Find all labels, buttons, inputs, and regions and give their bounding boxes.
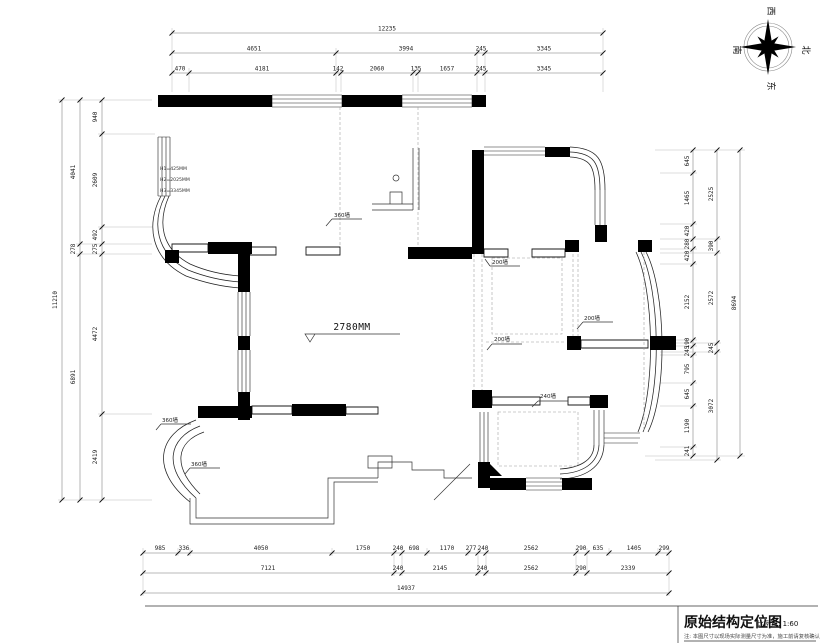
dim-label: 1405 xyxy=(627,545,642,552)
dim-label: 2562 xyxy=(524,545,539,552)
drawing-note: 注: 本图尺寸以现场实际测量尺寸为准，施工前请复核确认。 xyxy=(684,632,820,640)
dim-label: 1657 xyxy=(440,66,455,73)
dim-label: 241 xyxy=(684,445,691,456)
compass-label-west: 西 xyxy=(766,6,776,15)
wall-thickness-label: 200墙 xyxy=(494,335,510,343)
dim-label: 1750 xyxy=(356,545,371,552)
compass-rose: 西 北 东 南 xyxy=(732,6,811,90)
dim-label: 985 xyxy=(155,545,166,552)
dim-label: 240 xyxy=(393,545,404,552)
wall-thickness-label: 360墙 xyxy=(334,211,350,219)
wall-thickness-label: 200墙 xyxy=(492,258,508,266)
dim-label: 8694 xyxy=(731,295,738,310)
structural-wall-fills xyxy=(158,95,676,490)
dim-label: 245 xyxy=(476,46,487,53)
dimension-lines xyxy=(58,28,745,596)
dim-label: 240 xyxy=(393,565,404,572)
dim-label: 11210 xyxy=(52,291,59,309)
flue-circle xyxy=(393,175,399,181)
drawing-scale: 比例尺: 1:60 xyxy=(757,619,798,628)
dim-label: 299 xyxy=(659,545,670,552)
dim-label: 290 xyxy=(576,545,587,552)
dim-label: 940 xyxy=(92,111,99,122)
dim-label: 2609 xyxy=(92,172,99,187)
dim-label: 245 xyxy=(708,342,715,353)
dim-label: 2572 xyxy=(708,290,715,305)
dim-label: 3994 xyxy=(399,46,414,53)
dimensions-bottom: 985 336 4050 1750 240 698 1170 277 240 2… xyxy=(155,545,670,592)
compass-label-east: 东 xyxy=(766,81,777,90)
dim-label: 635 xyxy=(593,545,604,552)
dimensions-right: 8694 2525 390 2572 245 3072 645 1465 420… xyxy=(684,155,738,456)
dim-label: 2152 xyxy=(684,294,691,309)
dim-label: 795 xyxy=(684,363,691,374)
dim-label: 277 xyxy=(466,545,477,552)
dim-label: 1170 xyxy=(440,545,455,552)
wall-thickness-label: 360墙 xyxy=(162,416,178,424)
dim-label: 420 xyxy=(684,250,691,261)
curved-bay-windows xyxy=(153,147,662,502)
compass-label-south: 南 xyxy=(732,45,743,54)
title-block: 原始结构定位图 比例尺: 1:60 注: 本图尺寸以现场实际测量尺寸为准，施工前… xyxy=(145,606,820,643)
dim-label: 278 xyxy=(70,243,77,254)
dim-label: 280 xyxy=(684,238,691,249)
floor-plan-walls xyxy=(153,95,676,524)
fixture-and-outline-lines xyxy=(190,148,472,524)
dimensions-top: 12235 4651 3994 245 3345 470 4181 142 20… xyxy=(175,26,552,73)
dim-label: 240 xyxy=(477,565,488,572)
tick-marks-left xyxy=(60,98,105,503)
compass-label-north: 北 xyxy=(801,45,811,54)
height-note: H2=2025MM xyxy=(160,177,190,183)
dim-label: 2419 xyxy=(92,449,99,464)
dim-label: 470 xyxy=(175,66,186,73)
dim-label: 1465 xyxy=(684,190,691,205)
dim-label: 7121 xyxy=(261,565,276,572)
extension-lines xyxy=(58,28,745,596)
dim-label: 4041 xyxy=(70,164,77,179)
dim-label: 645 xyxy=(684,388,691,399)
dim-label: 240 xyxy=(478,545,489,552)
dim-label: 6891 xyxy=(70,369,77,384)
dim-label: 420 xyxy=(684,225,691,236)
dim-label: 2339 xyxy=(621,565,636,572)
dim-label: 135 xyxy=(411,66,422,73)
dim-label: 1190 xyxy=(684,418,691,433)
height-note: H1=425MM xyxy=(160,166,187,172)
height-note: H3=3345MM xyxy=(160,188,190,194)
dim-label: 4050 xyxy=(254,545,269,552)
wall-thickness-label: 360墙 xyxy=(191,460,207,468)
dimensions-left: 11210 4041 278 6891 940 2609 492 275 447… xyxy=(52,111,99,464)
dim-label: 4472 xyxy=(92,326,99,341)
dim-label: 275 xyxy=(92,243,99,254)
dim-label: 2060 xyxy=(370,66,385,73)
dim-label: 3072 xyxy=(708,398,715,413)
dim-label: 12235 xyxy=(378,26,396,33)
dim-label: 4651 xyxy=(247,46,262,53)
dim-label: 698 xyxy=(409,545,420,552)
dim-label: 245 xyxy=(684,345,691,356)
dim-label: 390 xyxy=(708,240,715,251)
dim-label: 4181 xyxy=(255,66,270,73)
dim-label: 2525 xyxy=(708,186,715,201)
wall-thickness-label: 240墙 xyxy=(540,392,556,400)
dim-chain-lines xyxy=(62,33,740,593)
dim-label: 245 xyxy=(476,66,487,73)
dim-label: 142 xyxy=(333,66,344,73)
ceiling-height-label: 2780MM xyxy=(333,322,370,333)
dim-label: 336 xyxy=(179,545,190,552)
dim-label: 3345 xyxy=(537,46,552,53)
drawing-sheet: 12235 4651 3994 245 3345 470 4181 142 20… xyxy=(0,0,820,643)
floor-plan: 12235 4651 3994 245 3345 470 4181 142 20… xyxy=(0,0,820,643)
dim-label: 14937 xyxy=(397,585,415,592)
dim-label: 645 xyxy=(684,155,691,166)
dim-label: 290 xyxy=(576,565,587,572)
dim-label: 2562 xyxy=(524,565,539,572)
dim-label: 492 xyxy=(92,229,99,240)
dim-label: 3345 xyxy=(537,66,552,73)
dashed-reference-lines xyxy=(340,107,644,466)
dim-label: 2145 xyxy=(433,565,448,572)
floor-plan-labels: 2780MM 360墙 200墙 200墙 200墙 240墙 360墙 360… xyxy=(160,166,600,468)
wall-thickness-label: 200墙 xyxy=(584,314,600,322)
